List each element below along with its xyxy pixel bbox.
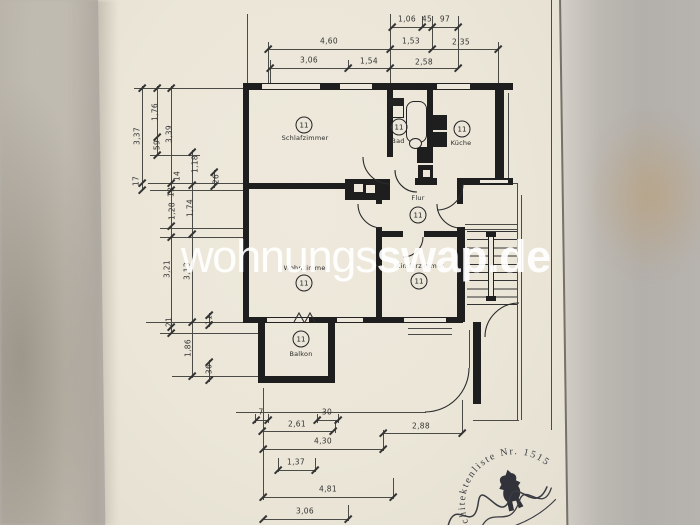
door-arc-schlafzimmer <box>363 157 390 184</box>
door-arc-zimmer2 <box>403 237 423 257</box>
door-arc-bad <box>395 170 417 192</box>
door-arc-stairwell <box>485 303 519 337</box>
floorplan-photo: 11 Schlafzimmer 11 Bad 11 Küche Flur 11 … <box>0 0 700 525</box>
balcony-door-marks <box>294 313 315 322</box>
architect-stamp: Architektenliste Nr. 1515 <box>432 434 556 525</box>
door-arcs-layer <box>0 0 700 525</box>
floorplan-drawing: 11 Schlafzimmer 11 Bad 11 Küche Flur 11 … <box>0 0 700 525</box>
berlin-bear-icon <box>496 468 526 513</box>
door-arc-kueche <box>437 184 463 210</box>
door-arc-wohnzimmer <box>358 204 382 228</box>
site-outline-curve <box>425 368 469 412</box>
